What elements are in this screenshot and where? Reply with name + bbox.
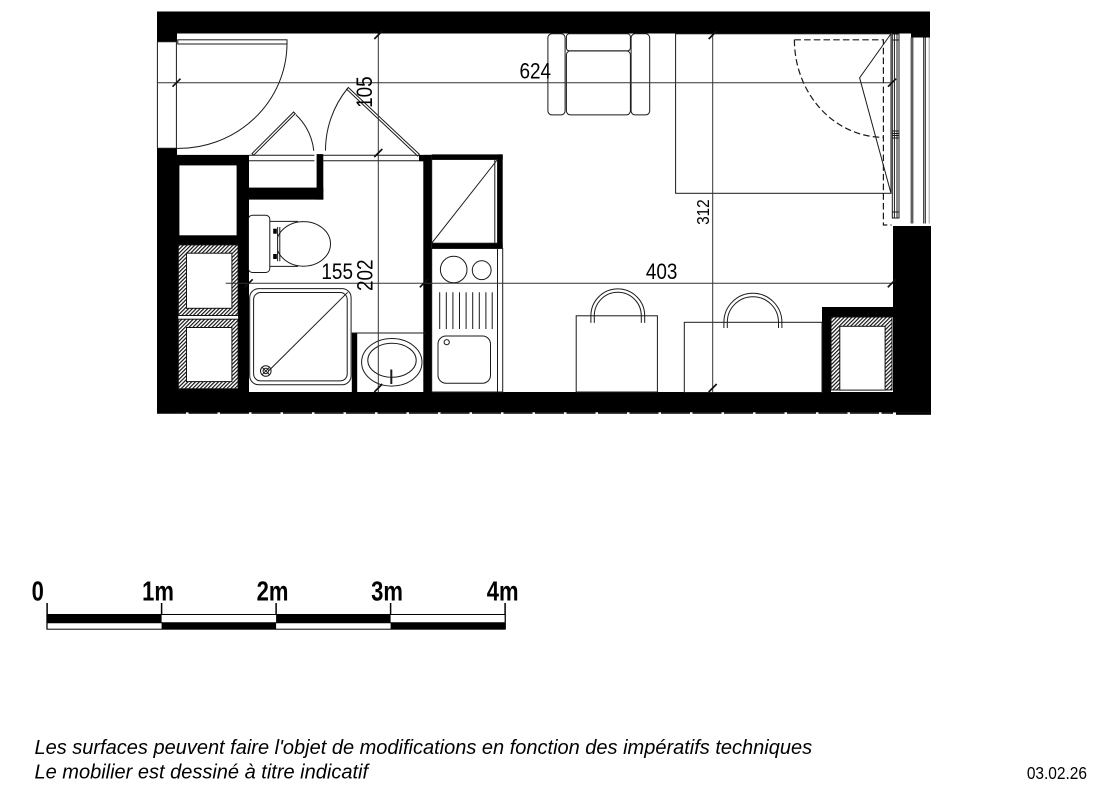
svg-text:202: 202 — [353, 259, 378, 291]
svg-text:Les surfaces peuvent faire l'o: Les surfaces peuvent faire l'objet de mo… — [35, 737, 813, 759]
svg-text:Le mobilier est dessiné à titr: Le mobilier est dessiné à titre indicati… — [35, 761, 371, 783]
svg-text:2m: 2m — [257, 576, 289, 607]
svg-text:3m: 3m — [371, 576, 403, 607]
svg-text:312: 312 — [694, 199, 713, 225]
svg-text:4m: 4m — [487, 576, 519, 607]
svg-text:0: 0 — [32, 576, 44, 607]
svg-text:03.02.26: 03.02.26 — [1027, 763, 1087, 783]
svg-text:105: 105 — [353, 76, 378, 108]
svg-text:155: 155 — [321, 260, 353, 285]
svg-text:624: 624 — [520, 59, 552, 84]
svg-text:1m: 1m — [142, 576, 174, 607]
svg-text:403: 403 — [646, 260, 678, 285]
